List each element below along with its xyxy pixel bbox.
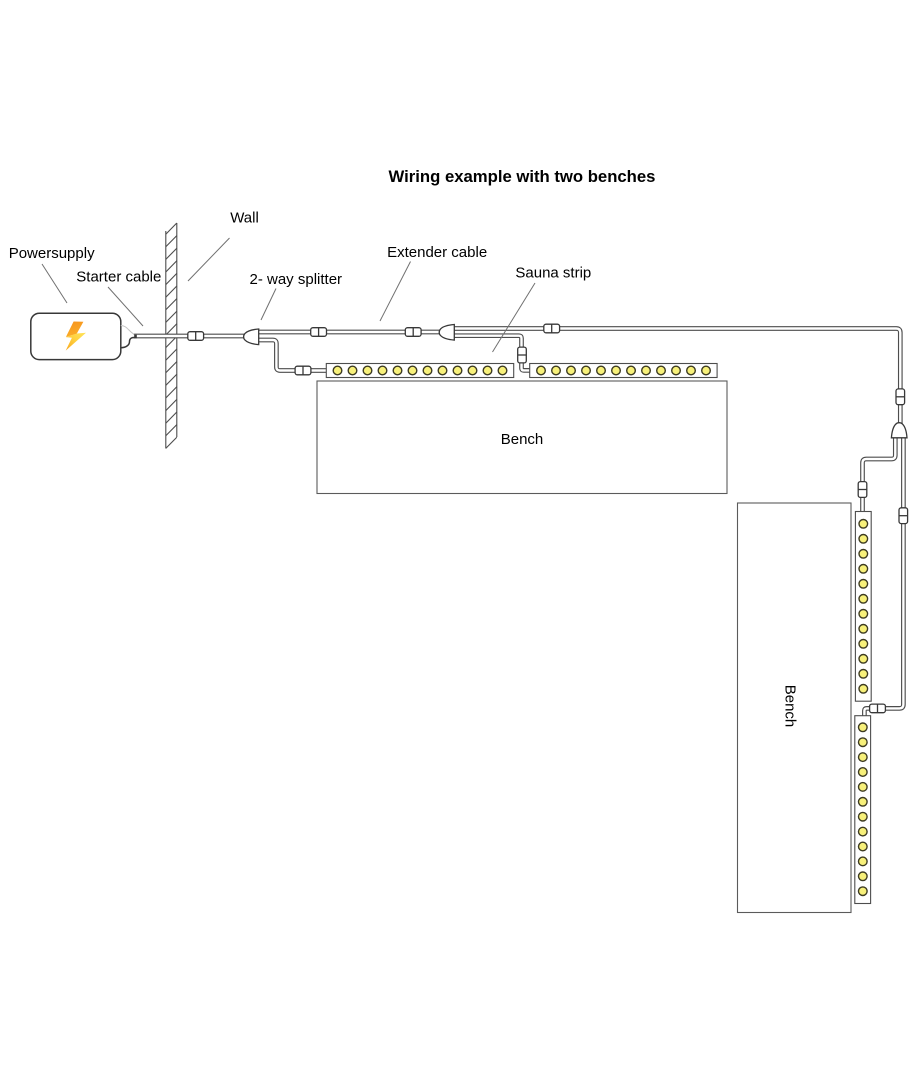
svg-text:Sauna strip: Sauna strip [515, 265, 591, 282]
svg-text:Wall: Wall [230, 210, 259, 227]
svg-text:Wiring example with two benche: Wiring example with two benches [389, 167, 656, 186]
svg-text:Bench: Bench [501, 431, 544, 448]
svg-text:Bench: Bench [782, 685, 799, 728]
svg-text:2- way splitter: 2- way splitter [250, 271, 343, 288]
svg-text:Powersupply: Powersupply [9, 245, 95, 262]
svg-text:Extender cable: Extender cable [387, 244, 487, 261]
svg-text:Starter cable: Starter cable [76, 269, 161, 286]
